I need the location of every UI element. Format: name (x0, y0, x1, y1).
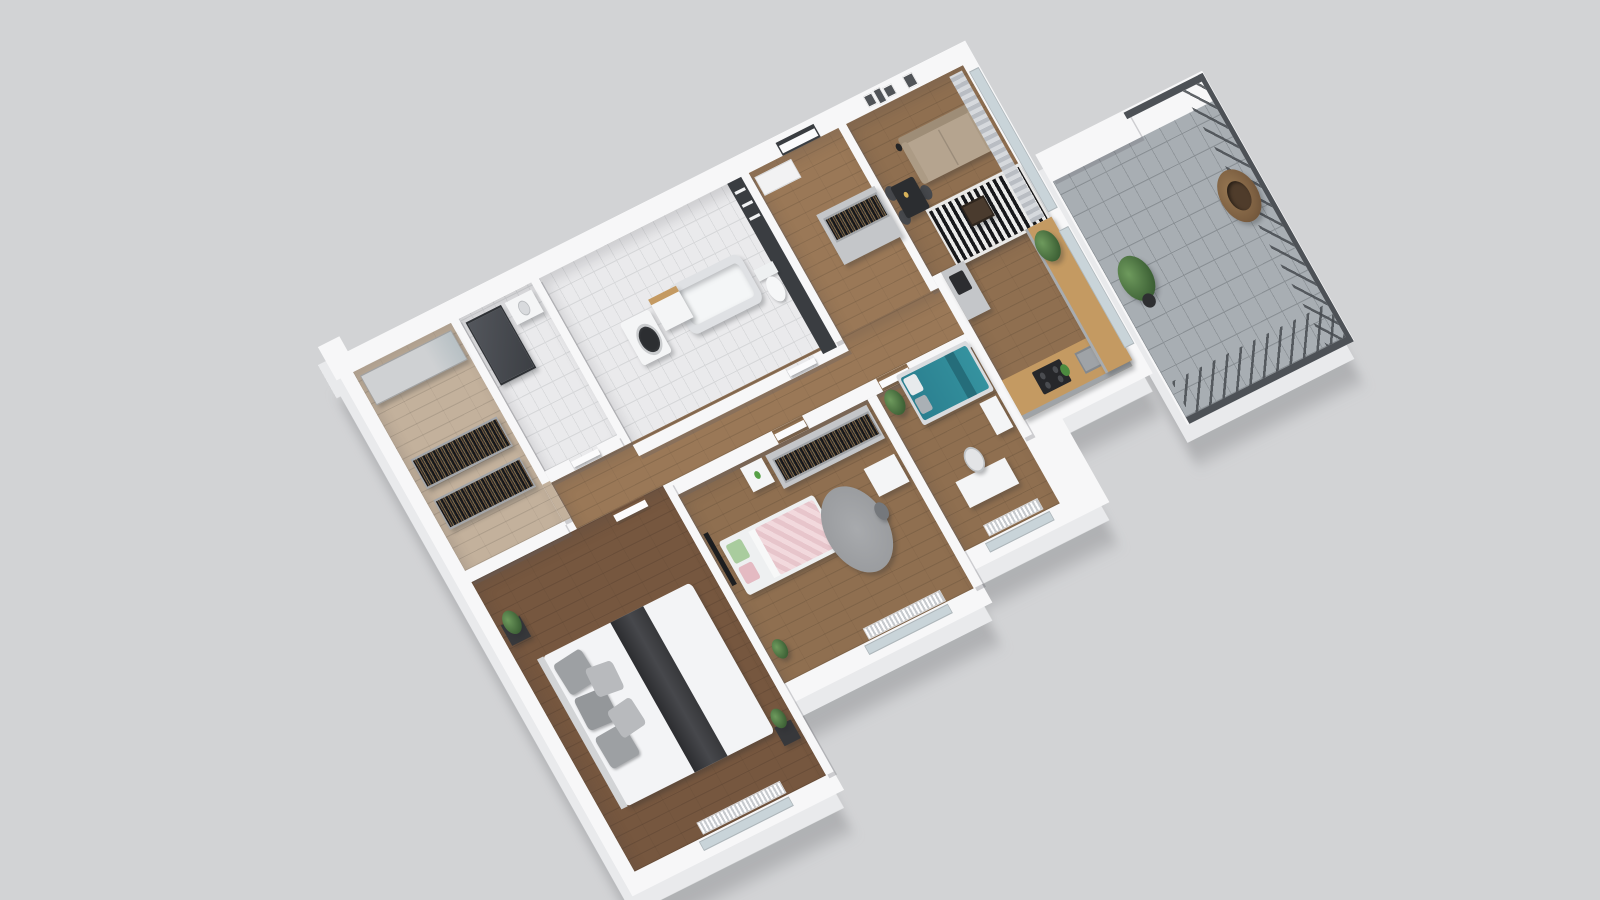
dining-table (890, 176, 930, 219)
toy (753, 470, 762, 480)
egg-chair-seat (1222, 177, 1257, 214)
floorplan-canvas: 3D isometric apartment floor plan render… (0, 0, 1600, 900)
coffee-machine (948, 270, 972, 295)
plan-layer (330, 39, 1271, 897)
